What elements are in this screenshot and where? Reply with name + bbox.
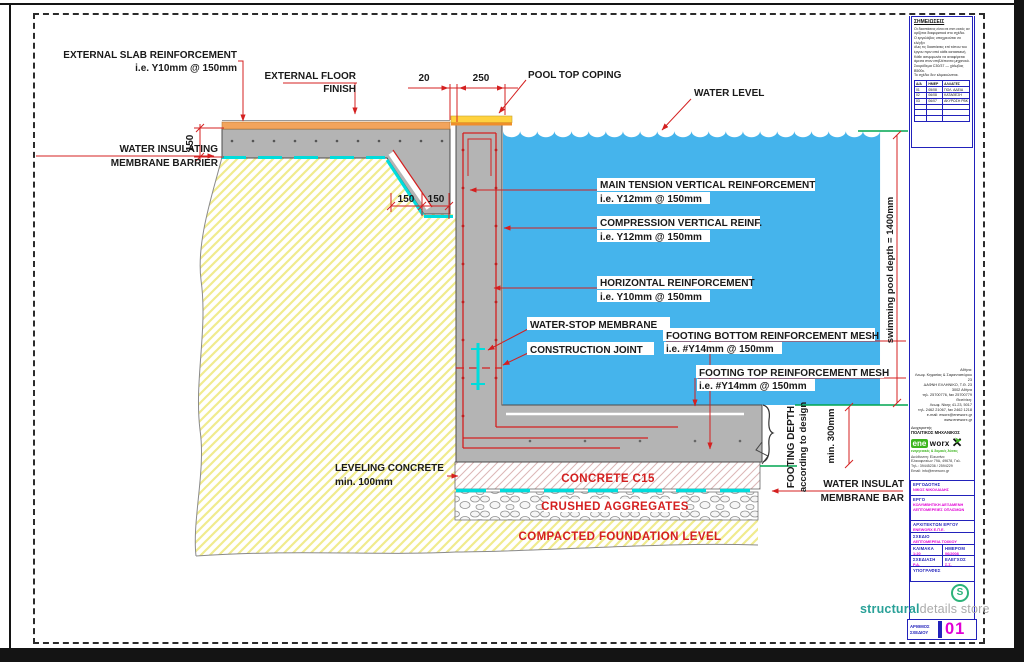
field-label: ΑΡΧΙΤΕΚΤΩΝ ΕΡΓΟΥ bbox=[913, 522, 972, 527]
notes-line: Το σχέδιο δεν κλιμακώνεται. bbox=[914, 73, 970, 78]
label-footing-depth: FOOTING DEPTH bbox=[786, 406, 797, 488]
company-block: Αθήνα: Λεωφ. Κηφισίας & Σαρανταπόρου 23 … bbox=[911, 368, 972, 473]
logo-x-icon: ✕➤ bbox=[952, 438, 963, 448]
label-compacted-foundation: COMPACTED FOUNDATION LEVEL bbox=[519, 531, 722, 543]
drawing-number-label: ΑΡΙΘΜΟΣ ΣΧΕΔΙΟΥ bbox=[910, 624, 938, 635]
label-horizontal-reinf-size: i.e. Y10mm @ 150mm bbox=[600, 292, 702, 303]
field-label: ΣΧΕΔΙΑΣΗ bbox=[913, 557, 940, 562]
dim-150-slab: 150 bbox=[185, 134, 196, 151]
drawing-sheet: EXTERNAL SLAB REINFORCEMENT i.e. Y10mm @… bbox=[0, 0, 1024, 662]
number-box-bar bbox=[938, 621, 942, 638]
field-value: ΚΟΛΥΜΒΗΤΙΚΗ ΔΕΞΑΜΕΝΗ bbox=[913, 503, 972, 508]
label-pool-top-coping: POOL TOP COPING bbox=[528, 70, 622, 81]
label-compression: COMPRESSION VERTICAL REINF. bbox=[600, 218, 762, 229]
field-ypografes: ΥΠΟΓΡΑΦΕΣ bbox=[910, 566, 975, 582]
notes-box: ΣΗΜΕΙΩΣΕΙΣ Οι διαστάσεις είναι σε mm εκτ… bbox=[911, 16, 973, 148]
drawing-number-value: 01 bbox=[945, 620, 965, 639]
notes-header: ΣΗΜΕΙΩΣΕΙΣ bbox=[914, 19, 970, 25]
label-horizontal-reinf: HORIZONTAL REINFORCEMENT bbox=[600, 278, 755, 289]
footing-depth-bracket bbox=[763, 405, 773, 462]
label-external-floor: EXTERNAL FLOOR bbox=[265, 71, 357, 82]
label-membrane-barrier: MEMBRANE BARRIER bbox=[111, 158, 219, 169]
store-brand: structuraldetails store bbox=[860, 602, 990, 616]
label-main-tension-size: i.e. Y12mm @ 150mm bbox=[600, 194, 702, 205]
notes-line: Ο εργολάβος υποχρεούται να ελέγξει bbox=[914, 36, 970, 45]
label-construction-joint: CONSTRUCTION JOINT bbox=[530, 345, 643, 356]
label-crushed-aggregates: CRUSHED AGGREGATES bbox=[541, 501, 689, 513]
label-water-insulat-right: WATER INSULAT bbox=[823, 479, 904, 490]
pool-coping bbox=[451, 116, 512, 126]
label-footing-min-300: min. 300mm bbox=[826, 409, 837, 464]
titleblock-fields: ΕΡΓΟΔΟΤΗΣ ΝΙΚΟΣ ΝΙΚΟΛΑΙΔΗΣ ΕΡΓΟ ΚΟΛΥΜΒΗΤ… bbox=[910, 481, 975, 582]
store-s-icon: S bbox=[951, 584, 969, 602]
logo-tagline: ενεργειακές & δομικές λύσεις bbox=[911, 449, 972, 453]
label-leveling-min: min. 100mm bbox=[335, 477, 393, 488]
pool-water bbox=[503, 131, 880, 405]
field-value: ΝΙΚΟΣ ΝΙΚΟΛΑΙΔΗΣ bbox=[913, 488, 972, 493]
label-footing-bottom-mesh-size: i.e. #Y14mm @ 150mm bbox=[666, 344, 774, 355]
label-concrete-c15: CONCRETE C15 bbox=[561, 473, 655, 485]
revision-row-empty bbox=[915, 116, 970, 122]
company-address: Αθήνα: Λεωφ. Κηφισίας & Σαρανταπόρου 23 … bbox=[911, 368, 972, 423]
notes-line: έργου πριν από κάθε κατασκευή. bbox=[914, 50, 970, 55]
label-water-stop: WATER-STOP MEMBRANE bbox=[530, 320, 658, 331]
eneworx-logo: eneworx ✕➤ bbox=[911, 438, 972, 448]
field-label: ΕΛΕΓΧΟΣ bbox=[945, 557, 972, 562]
field-value: Ρ.Δ. bbox=[913, 563, 940, 568]
notes-line: Σκυρόδεμα C30/37 — χάλυβας B500c. bbox=[914, 64, 970, 73]
brand-structural: structural bbox=[860, 602, 920, 616]
field-label: ΣΧΕΔΙΟ bbox=[913, 534, 972, 539]
field-elegxos: ΕΛΕΓΧΟΣ Σ.Σ. bbox=[942, 555, 975, 567]
field-value: ΛΕΠΤΟΜΕΡΕΙΕΣ ΟΠΛΙΣΜΩΝ bbox=[913, 508, 972, 513]
floor-finish bbox=[222, 121, 450, 130]
scan-band-right bbox=[1014, 0, 1024, 662]
field-value: Σ.Σ. bbox=[945, 563, 972, 568]
dim-250-wall: 250 bbox=[473, 73, 490, 84]
field-sxediasi: ΣΧΕΔΙΑΣΗ Ρ.Δ. bbox=[910, 555, 943, 567]
label-pool-depth: swimming pool depth = 1400mm bbox=[885, 197, 896, 344]
scan-band-bottom bbox=[0, 648, 1024, 662]
field-label: ΕΡΓΟ bbox=[913, 497, 972, 502]
office-address: Διεύθυνση: Ελευσίνα Ελαιοφυτείων 79Α, 49… bbox=[911, 455, 972, 474]
dim-20-joint: 20 bbox=[418, 73, 430, 84]
label-external-slab-reinforcement: EXTERNAL SLAB REINFORCEMENT bbox=[63, 50, 237, 61]
revisions-table: Α/Α ΗΜΕΡ ΑΛΛΑΓΕΣ 01 05/08 ΠΟΛ. ΑΔΕΙΑ 02 … bbox=[914, 80, 970, 121]
label-external-slab-reinforcement-size: i.e. Y10mm @ 150mm bbox=[135, 63, 237, 74]
field-label: ΗΜΕΡΟΜ bbox=[945, 546, 972, 551]
label-external-floor-finish: FINISH bbox=[323, 84, 356, 95]
field-label: ΥΠΟΓΡΑΦΕΣ bbox=[913, 568, 972, 573]
label-main-tension: MAIN TENSION VERTICAL REINFORCEMENT bbox=[600, 180, 815, 191]
pool-wall-section-drawing: EXTERNAL SLAB REINFORCEMENT i.e. Y10mm @… bbox=[0, 0, 1024, 662]
label-compression-size: i.e. Y12mm @ 150mm bbox=[600, 232, 702, 243]
field-ergo: ΕΡΓΟ ΚΟΛΥΜΒΗΤΙΚΗ ΔΕΞΑΜΕΝΗ ΛΕΠΤΟΜΕΡΕΙΕΣ Ο… bbox=[910, 495, 975, 521]
logo-worx-text: worx bbox=[930, 439, 950, 448]
brand-details-store: details store bbox=[920, 602, 990, 616]
label-water-insulating: WATER INSULATING bbox=[119, 144, 218, 155]
label-footing-bottom-mesh: FOOTING BOTTOM REINFORCEMENT MESH bbox=[666, 331, 879, 342]
label-leveling-concrete: LEVELING CONCRETE bbox=[335, 463, 444, 474]
dim-150-haunch-b: 150 bbox=[428, 194, 445, 205]
field-label: ΕΡΓΟΔΟΤΗΣ bbox=[913, 482, 972, 487]
label-footing-depth-note: according to design bbox=[798, 402, 809, 492]
label-water-level: WATER LEVEL bbox=[694, 88, 764, 99]
manager-title: ΠΟΛΙΤΙΚΟΣ ΜΗΧΑΝΙΚΟΣ bbox=[911, 430, 972, 435]
label-footing-top-mesh-size: i.e. #Y14mm @ 150mm bbox=[699, 381, 807, 392]
field-label: ΚΛΙΜΑΚΑ bbox=[913, 546, 940, 551]
logo-ene-text: ene bbox=[911, 439, 928, 448]
field-ergodotis: ΕΡΓΟΔΟΤΗΣ ΝΙΚΟΣ ΝΙΚΟΛΑΙΔΗΣ bbox=[910, 480, 975, 496]
label-footing-top-mesh: FOOTING TOP REINFORCEMENT MESH bbox=[699, 368, 889, 379]
dim-150-haunch-a: 150 bbox=[398, 194, 415, 205]
drawing-number-box: ΑΡΙΘΜΟΣ ΣΧΕΔΙΟΥ 01 bbox=[907, 619, 977, 640]
label-membrane-bar-right: MEMBRANE BAR bbox=[821, 493, 905, 504]
external-floor-finish-strip bbox=[222, 122, 450, 129]
